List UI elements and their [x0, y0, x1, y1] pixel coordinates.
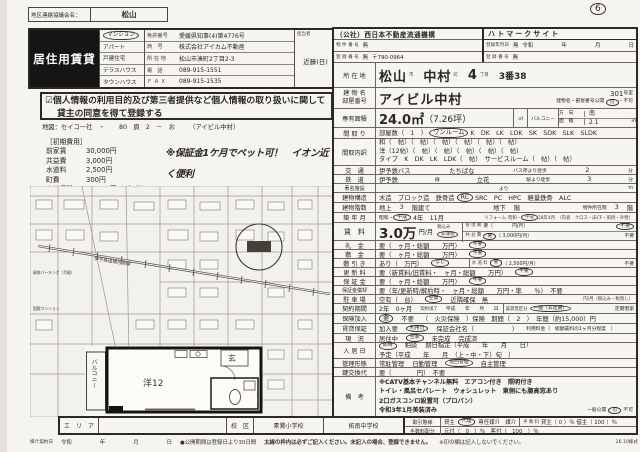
- remarks-line: 令和3年1月美装済み: [379, 406, 437, 415]
- row-amortization: 保証金償却 要（年/更新時/解約時・ ヶ月・総額 万円・率 ％） 不要: [334, 285, 636, 294]
- row-key-money: 礼 金 要（ ヶ月・総額 万円）不要: [334, 240, 636, 249]
- mapref-label: 地図：セイコー社 ・: [42, 122, 105, 131]
- floor-area-value: 24.0㎡: [379, 109, 424, 128]
- row-guarantee-money: 保 証 金 要（ ヶ月・総額 万円）不要: [334, 276, 636, 285]
- remarks-line: トイレ・風呂セパレート ウォシュレット 東側にも腰高窓あり: [379, 387, 633, 396]
- row-remarks: 備 考 ※CATV基本チャンネル無料 エアコン付き 照明付き トイレ・風呂セパレ…: [334, 376, 636, 416]
- slogan-1: ※保証金1ケ月でペット可！ イオン近く便利: [166, 143, 336, 185]
- district-council-label: 地区連絡協議会名：: [29, 8, 91, 21]
- rail-station: 立花: [477, 175, 490, 184]
- dealing-type-box: 取引態様 貸主代理専任媒介 媒介 手 数 料 貸主（ 0 ）％ 借主（ 100 …: [405, 416, 638, 435]
- fee-distribution: 元付（ 0 ）％ 客付（ 100 ）％: [441, 427, 542, 435]
- fax-value: 089-915-1535: [179, 78, 222, 85]
- reform-date: 28年4月: [538, 215, 555, 221]
- row-parking: 駐 車 場 空有（ 台）空無近隣確保 無円/月（税込み・税無し）: [334, 294, 636, 303]
- kyoeki-amount: （ 3,000円/月）: [496, 233, 532, 240]
- staff-box: 担当者 近藤(日): [295, 30, 336, 87]
- balcony-direction: 南: [585, 110, 595, 118]
- footer-line: 媒介契約日 令和 年 月 日 ●公開期間は登録日より30日間 太線の枠内は必ずご…: [30, 438, 638, 446]
- layout-type-selected: ワンルーム: [429, 128, 468, 137]
- contract-term: 2年 0ヶ月: [379, 304, 412, 313]
- lease-type-selected: 一般（非定期）: [530, 305, 572, 313]
- map-label-mansion: 国際マンション: [33, 306, 60, 311]
- tel-value: 089-915-1551: [179, 67, 222, 74]
- privacy-consent-box: ☑個人情報の利用目的及び第三者提供など個人情報の取り扱いに関して 貸主の同意を得…: [40, 92, 333, 120]
- floor-plan: バルコニー 玄 洋12: [85, 346, 263, 416]
- rental-listing-sheet: 地区連絡協議会名： 松山 6 居住用賃貸 マンション アパート 戸建住宅 テラス…: [0, 0, 640, 452]
- bold-frame-note: 太線の枠内は必ずご記入ください。未記入の場合、登録できません。: [264, 438, 431, 446]
- initial-costs-title: ［初期費用］: [46, 138, 164, 147]
- circled-number: 6: [590, 3, 606, 15]
- company-value: 株式会社アイカム不動産: [179, 42, 245, 51]
- shikibiki-selected: なし: [431, 259, 449, 267]
- deposit-selected: 不要: [469, 250, 487, 258]
- company-label: 商 号: [145, 43, 179, 50]
- balcony-label: バルコニー: [90, 359, 97, 388]
- fax-label: Ｆ Ａ Ｘ: [145, 78, 179, 85]
- contract-date-label: 媒介契約日: [30, 439, 53, 445]
- row-floor-area: 専有面積 24.0㎡ （7.26坪） ㎡ バルコニー 方 向南 面 積2.1㎡: [334, 108, 636, 127]
- property-type-apart: アパート: [100, 42, 144, 54]
- privacy-line1: 個人情報の利用目的及び第三者提供など個人情報の取り扱いに関して: [53, 96, 325, 106]
- cost-item: 町費300円: [46, 176, 164, 185]
- junior-high-school: 拓南中学校: [323, 418, 403, 433]
- key-money-selected: 不要: [469, 241, 487, 249]
- location-chome: 4: [468, 68, 478, 83]
- insurance-selected: 要: [379, 314, 393, 323]
- publish-yes: 可: [606, 99, 619, 107]
- row-location: 所 在 地 松山市 中村町 4丁目 3番38: [334, 62, 636, 87]
- entrance-label: 玄: [228, 353, 236, 363]
- form-code: 26.10様式: [616, 439, 638, 445]
- row-insurance: 保険加入 要不要（ 火災保険 ）保険 期間（ 2 ） 年間（約15,000）円: [334, 313, 636, 323]
- location-banchi: 3番38: [499, 69, 527, 82]
- district-council-value: 松山: [91, 8, 167, 21]
- management-selected: 巡回管理: [445, 359, 472, 367]
- mapref-value: 80 頁 2 － お: [119, 122, 175, 131]
- reform-note: （内容 クロス・床CF・照明・外壁）: [557, 215, 633, 221]
- cost-item: 前家賃30,000円: [46, 147, 164, 156]
- structure-selected: RC: [457, 193, 473, 202]
- row-deposit: 敷 金 要（ ヶ月・総額 万円）不要: [334, 249, 636, 258]
- row-building-name: 建 物 名部屋番号 アイビル中村 301号室 建物名・部屋番号公開 可・不可: [334, 87, 636, 108]
- property-type-kodate: 戸建住宅: [100, 53, 144, 65]
- location-city: 松山: [379, 66, 407, 85]
- fee-split: 貸主（ 0 ）％ 借主（ 100 ）％: [541, 418, 617, 426]
- renewal-selected: 不要: [515, 268, 533, 276]
- area-label: エ リ ア: [60, 418, 98, 433]
- license-value: 愛媛県知事(4)第4776号: [179, 31, 245, 40]
- mgmt-fee-selected: 不要: [616, 223, 634, 231]
- guarantee-money-selected: 不要: [469, 277, 487, 285]
- reform-era-selected: 平成: [521, 214, 538, 221]
- property-type-terrace: テラスハウス: [100, 65, 144, 77]
- remarks-line: ※CATV基本チャンネル無料 エアコン付き 照明付き: [379, 378, 633, 387]
- row-key-exchange: 鍵交換代 要（ 円） 不要: [334, 367, 636, 376]
- floors-above: 3: [400, 204, 404, 211]
- row-contract-term: 契約期間 2年 0ヶ月契約満了平成 年 月 日 賃貸借区分 一般（非定期）定期借…: [334, 303, 636, 313]
- location-town: 中村: [423, 66, 451, 85]
- rail-company: 伊予鉄: [379, 175, 398, 184]
- property-block: [247, 241, 271, 252]
- room-label: 洋12: [143, 377, 163, 389]
- map-label-parking: 駅前パーキング（月極）: [33, 270, 75, 275]
- asterisk-note: ※印の欄は記入しないでください。: [439, 438, 524, 446]
- room-number: 301: [610, 90, 623, 99]
- kyoeki-selected: 要: [483, 233, 496, 241]
- cost-item: 共益費3,000円: [46, 157, 164, 166]
- floor-area-tsubo: （7.26坪）: [424, 112, 471, 125]
- row-renewal-fee: 更 新 料 要（新賃料/旧賃料・ ヶ月・総額 万円）不要: [334, 267, 636, 276]
- page-number-mark: 6: [590, 3, 606, 15]
- scan-edge: [0, 0, 7, 452]
- row-structure: 建物構造 木造 ブロック造 鉄骨造 RC SRC PC HPC 軽量鉄骨 ALC: [334, 192, 636, 202]
- row-access-facility: 著名施設 よりm: [334, 183, 636, 192]
- row-layout: 間 取 り 部屋数（ 1 ） ワンルーム K DK LK LDK SK SDK …: [334, 127, 636, 138]
- built-era-selected: 平成: [393, 214, 411, 222]
- cost-item: 水道料2,500円: [46, 166, 164, 175]
- privacy-line2: 貸主の同意を得て登録する: [45, 108, 328, 121]
- staff-value: 近藤(日): [295, 56, 336, 66]
- staff-label: 担当者: [297, 31, 311, 37]
- tel-label: 電 話: [145, 67, 179, 74]
- registry-org-name: （公社）西日本不動産流通機構: [334, 29, 482, 40]
- row-layout-detail: 間取内訳 和（ 帖）（ 帖）（ 帖）（ 帖）（ 帖）（ 帖） 洋（12帖）（ 帖…: [334, 138, 636, 165]
- elementary-school: 素鵞小学校: [253, 418, 323, 433]
- row-built-date: 築 年 月 昭和・平成 4年 11月リフォーム 昭和・平成28年4月 （内容 ク…: [334, 212, 636, 222]
- doc-type-banner: 居住用賃貸: [30, 30, 99, 87]
- agency-address-label: 所 在 地: [145, 55, 179, 62]
- balcony-area: 2.1: [585, 119, 599, 127]
- dealing-selected: 代理: [458, 418, 476, 426]
- district-council-box: 地区連絡協議会名： 松山: [28, 7, 168, 22]
- property-type-mansion: マンション: [100, 30, 144, 42]
- property-floor: 3: [615, 204, 619, 211]
- agency-address-value: 松山市湊町2丁目2-3: [179, 54, 235, 63]
- agency-license-block: 免許番号愛媛県知事(4)第4776号 商 号株式会社アイカム不動産 所 在 地松…: [145, 30, 295, 87]
- map-reference-line: 地図：セイコー社 ・ 80 頁 2 － お （アイビル中村）: [42, 122, 332, 131]
- row-shikibiki: 敷 引 き あり（ 万円）なし 水 道 料 要（ 2,500円/月）不要: [334, 258, 636, 267]
- mapref-note: （アイビル中村）: [189, 122, 239, 131]
- bottom-band: エ リ ア 校 区 素鵞小学校 拓南中学校 取引態様 貸主代理専任媒介 媒介 手…: [30, 416, 638, 435]
- row-access-bus: 交 通 伊予鉄バスたちばなバス停より徒歩2分: [334, 165, 636, 174]
- checkbox-icon: ☑: [45, 96, 53, 106]
- building-name: アイビル中村: [379, 89, 462, 108]
- property-type-town: タウンハウス: [100, 76, 144, 87]
- insurance-detail: （ 火災保険 ）保険 期間（ 2 ） 年間（約15,000）円: [422, 314, 596, 323]
- license-label: 免許番号: [145, 32, 179, 39]
- bus-company: 伊予鉄バス: [379, 166, 410, 175]
- water-fee-selected: 要: [490, 259, 503, 267]
- row-move-in: 入 居 日 即時相談期日指定（平成 年 月 日） 予定（平成 年 月 （上・中・…: [334, 342, 636, 358]
- row-floors: 建物階数 地上3階建て地下階物件所在階3階: [334, 202, 636, 212]
- registry-header: （公社）西日本不動産流通機構 物 件 番 号無 登 録 番 号無〒790-096…: [334, 29, 636, 62]
- property-type-list: マンション アパート 戸建住宅 テラスハウス タウンハウス: [99, 30, 145, 87]
- bus-stop: たちばな: [449, 166, 474, 175]
- parking-selected: 空無: [425, 295, 443, 303]
- row-access-rail: 鉄 道 伊予鉄線立花駅より徒歩3分: [334, 174, 636, 183]
- school-district-label: 校 区: [226, 418, 253, 433]
- rent-amount: 3.0万: [379, 222, 416, 242]
- rent-guarantee-selected: 利用可: [406, 325, 428, 333]
- move-in-selected: 即時: [379, 342, 397, 350]
- area-school-row: エ リ ア 校 区 素鵞小学校 拓南中学校: [58, 416, 405, 435]
- remarks-line: 2口ガスコンロ設置可（プロパン）: [379, 397, 633, 406]
- hatomark-title: ハトマークサイト: [484, 29, 636, 40]
- publication-period-note: ●公開期間は登録日より30日間: [180, 438, 256, 446]
- public-listing-selected: 可: [608, 407, 621, 415]
- water-fee-amount: （ 2,500円/月）: [502, 260, 538, 267]
- agency-header: 居住用賃貸 マンション アパート 戸建住宅 テラスハウス タウンハウス 免許番号…: [28, 28, 338, 89]
- row-rent: 賃 料 3.0万 円/月 税込み非課税 管 理 費 要（ 円/月）不要 共 益 …: [334, 222, 636, 240]
- property-detail-table: （公社）西日本不動産流通機構 物 件 番 号無 登 録 番 号無〒790-096…: [332, 27, 638, 418]
- balcony-label: バルコニー: [527, 109, 558, 128]
- row-rent-guarantee: 賃貸保証 加入要利用可保証会社名（ ）利用料金（ 総額賃料の1ヶ月分程度 ）: [334, 323, 636, 333]
- tax-selected: 非課税: [437, 231, 458, 238]
